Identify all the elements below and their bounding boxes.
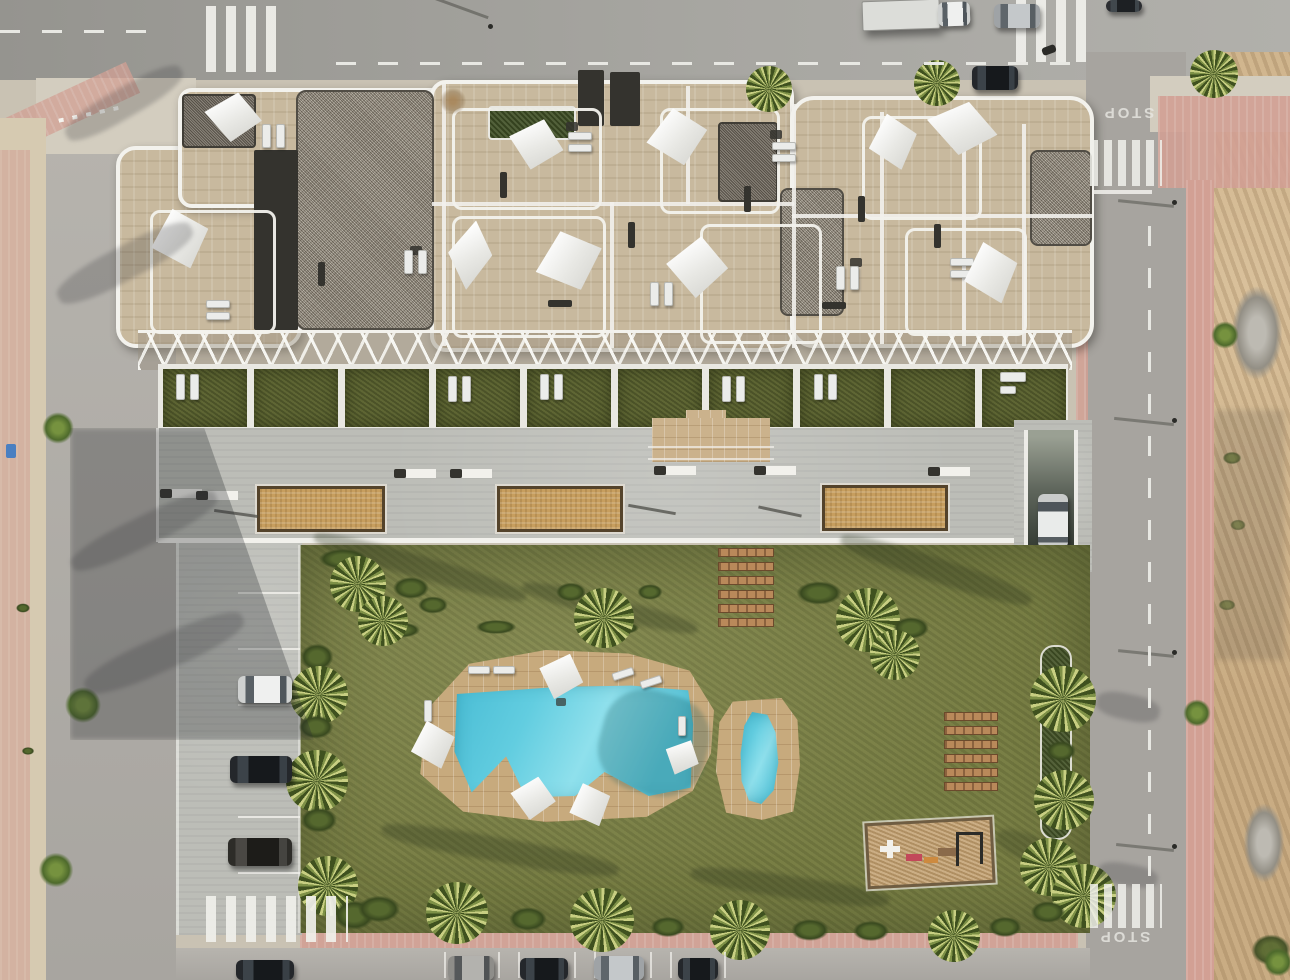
- wood-plank-step: [718, 576, 774, 585]
- petanque-court: [257, 486, 385, 532]
- deck-lounger: [424, 700, 432, 722]
- palm-tree: [574, 588, 634, 648]
- deck-lounger: [678, 716, 686, 736]
- bench: [940, 467, 970, 476]
- terrace-lounger: [462, 376, 471, 402]
- roof-lounger: [950, 258, 974, 266]
- bench: [406, 469, 436, 478]
- bush: [848, 918, 894, 944]
- parked-car-west: [230, 756, 292, 783]
- skylight: [858, 196, 865, 222]
- lane-dash-right-road: [1148, 204, 1151, 876]
- terrace-lounger: [540, 374, 549, 400]
- right-sidewalk-east: [1186, 180, 1214, 980]
- roof-lounger: [664, 282, 673, 306]
- car-silver-top-road: [994, 4, 1040, 28]
- crosswalk-right-south: [1090, 884, 1162, 928]
- skylight: [548, 300, 572, 307]
- wood-plank-step: [718, 590, 774, 599]
- gravel-roof-right: [1030, 150, 1092, 246]
- tree: [32, 846, 80, 894]
- ramp-wall: [1074, 430, 1078, 562]
- terrace-garden: [254, 369, 338, 427]
- bench: [666, 466, 696, 475]
- skylight: [934, 224, 941, 248]
- palm-tree: [1030, 666, 1096, 732]
- playground-bench: [938, 848, 956, 856]
- wood-plank-step: [944, 726, 998, 735]
- lamp-post: [1172, 418, 1177, 423]
- parapet-line: [610, 202, 614, 348]
- roof-lounger: [772, 142, 796, 150]
- tree: [1206, 316, 1244, 354]
- palm-tree: [870, 630, 920, 680]
- bench: [766, 466, 796, 475]
- roof-chimney: [610, 72, 640, 126]
- gravel-roof-large: [296, 90, 434, 330]
- palm-tree: [710, 900, 770, 960]
- terrace-lounger: [190, 374, 199, 400]
- terrace-lounger: [176, 374, 185, 400]
- roof-lounger: [568, 132, 592, 140]
- bush: [1026, 898, 1070, 926]
- bush: [296, 804, 342, 836]
- terrace-lounger: [554, 374, 563, 400]
- bush: [786, 916, 834, 944]
- skylight: [628, 222, 635, 248]
- bench: [462, 469, 492, 478]
- lamp-post: [1172, 844, 1177, 849]
- lamp-post: [488, 24, 493, 29]
- bench-seat: [754, 466, 766, 475]
- parapet-line: [442, 84, 446, 346]
- wood-plank-step: [944, 782, 998, 791]
- playground-toy-orange: [924, 857, 938, 863]
- lamp-post: [1172, 200, 1177, 205]
- parked-car: [448, 956, 494, 980]
- bench-seat: [450, 469, 462, 478]
- swing-post: [980, 832, 983, 864]
- parking-separator: [670, 952, 672, 978]
- parked-car-west: [236, 960, 294, 980]
- palm-tree: [746, 66, 792, 112]
- parked-car: [594, 956, 644, 980]
- palm-tree: [1034, 770, 1094, 830]
- palm-tree: [928, 910, 980, 962]
- roof-table: [770, 130, 782, 139]
- deck-table: [556, 698, 566, 706]
- roof-lounger: [418, 250, 427, 274]
- weed: [20, 746, 36, 756]
- parking-separator: [650, 952, 652, 978]
- stop-road-marking-south: STOP: [1092, 928, 1156, 945]
- pink-plaza-topright: [1158, 96, 1290, 188]
- parking-separator: [498, 952, 500, 978]
- terrace-garden: [345, 369, 429, 427]
- entry-tiles: [652, 418, 770, 462]
- tree: [1178, 694, 1216, 732]
- bush: [984, 914, 1026, 940]
- recycle-bin: [6, 444, 16, 458]
- palm-tree: [286, 750, 348, 812]
- wood-plank-step: [944, 740, 998, 749]
- terrace-lounger: [828, 374, 837, 400]
- bench-seat: [654, 466, 666, 475]
- wood-plank-step: [718, 604, 774, 613]
- terrace-lounger: [722, 376, 731, 402]
- rubble-pile-south: [1236, 788, 1290, 898]
- bush: [414, 594, 452, 616]
- entry-step-line: [648, 458, 774, 460]
- deck-lounger: [493, 666, 515, 674]
- outdoor-kitchen: [1000, 372, 1026, 382]
- skylight: [318, 262, 325, 286]
- bush: [352, 892, 406, 926]
- palm-tree: [1190, 50, 1238, 98]
- roof-lounger: [262, 124, 271, 148]
- deck-lounger: [468, 666, 490, 674]
- swing-post: [956, 834, 959, 866]
- ramp-wall: [1024, 430, 1028, 562]
- wood-plank-step: [718, 548, 774, 557]
- truck-trailer: [862, 0, 941, 31]
- wood-plank-step: [944, 754, 998, 763]
- parking-separator: [444, 952, 446, 978]
- roof-lounger: [404, 250, 413, 274]
- skylight: [744, 186, 751, 212]
- aerial-site-render: STOP STOP: [0, 0, 1290, 980]
- entry-step-line: [648, 446, 774, 448]
- skylight: [822, 302, 846, 309]
- wood-plank-step: [944, 712, 998, 721]
- shrub: [1220, 450, 1244, 466]
- bush: [504, 904, 552, 934]
- parked-car-west: [228, 838, 292, 866]
- dirt-shadow: [1214, 410, 1284, 660]
- terrace-garden: [891, 369, 975, 427]
- roof-lounger: [836, 266, 845, 290]
- car-entering-garage: [1038, 494, 1068, 548]
- playground-rotor: [887, 840, 893, 858]
- terrace-lounger: [448, 376, 457, 402]
- wood-plank-step: [944, 768, 998, 777]
- parapet-line: [1022, 124, 1026, 346]
- stop-line: [1092, 190, 1152, 194]
- lamp-post: [1172, 650, 1177, 655]
- lane-dash-top: [336, 62, 1088, 65]
- bench-seat: [394, 469, 406, 478]
- palm-tree: [570, 888, 634, 952]
- parapet-line: [792, 104, 796, 348]
- playground-toy-pink: [906, 854, 922, 861]
- car-dark-edge: [1106, 0, 1142, 12]
- skylight: [500, 172, 507, 198]
- bench-seat: [928, 467, 940, 476]
- parking-separator: [574, 952, 576, 978]
- petanque-court: [822, 485, 948, 531]
- wood-plank-step: [718, 562, 774, 571]
- palm-tree: [914, 60, 960, 106]
- truck-cab: [938, 1, 971, 26]
- terrace-garden: [800, 369, 884, 427]
- parking-line: [238, 872, 302, 874]
- roof-lounger: [650, 282, 659, 306]
- roof-lounger: [206, 300, 230, 308]
- car-dark-top-road: [972, 66, 1018, 90]
- crosswalk-top-left: [206, 6, 286, 72]
- parking-separator: [724, 952, 726, 978]
- roof-lounger: [772, 154, 796, 162]
- roof-lounger: [206, 312, 230, 320]
- roof-table: [566, 122, 578, 131]
- swing-bar: [956, 832, 983, 835]
- terrace-parapet: [700, 224, 822, 344]
- parapet-line: [792, 214, 1092, 218]
- dry-tree: [434, 82, 472, 120]
- parked-car-west: [238, 676, 292, 703]
- roof-lounger: [568, 144, 592, 152]
- lane-dash-top-west: [0, 30, 168, 33]
- terrace-lounger: [736, 376, 745, 402]
- wood-plank-step: [718, 618, 774, 627]
- palm-tree: [426, 882, 488, 944]
- bush: [646, 914, 690, 940]
- shrub: [1216, 598, 1238, 612]
- bush: [634, 582, 666, 602]
- roof-lounger: [276, 124, 285, 148]
- stop-road-marking-north: STOP: [1096, 104, 1160, 121]
- terrace-lounger: [814, 374, 823, 400]
- left-pink-path: [0, 150, 30, 980]
- playground-sand: [864, 817, 995, 890]
- shrub: [1228, 518, 1248, 532]
- corner-tree: [1258, 942, 1290, 980]
- parked-car: [520, 958, 568, 980]
- parking-line: [238, 816, 302, 818]
- parapet-line: [432, 202, 794, 206]
- crosswalk-bottom-left: [206, 896, 348, 942]
- crosswalk-right-north: [1090, 140, 1162, 186]
- palm-tree: [358, 596, 408, 646]
- outdoor-kitchen: [1000, 386, 1016, 394]
- bush: [470, 618, 522, 636]
- bush: [1042, 738, 1080, 764]
- weed: [14, 602, 32, 614]
- petanque-court: [497, 486, 623, 532]
- roof-lounger: [850, 266, 859, 290]
- parked-car: [678, 958, 718, 980]
